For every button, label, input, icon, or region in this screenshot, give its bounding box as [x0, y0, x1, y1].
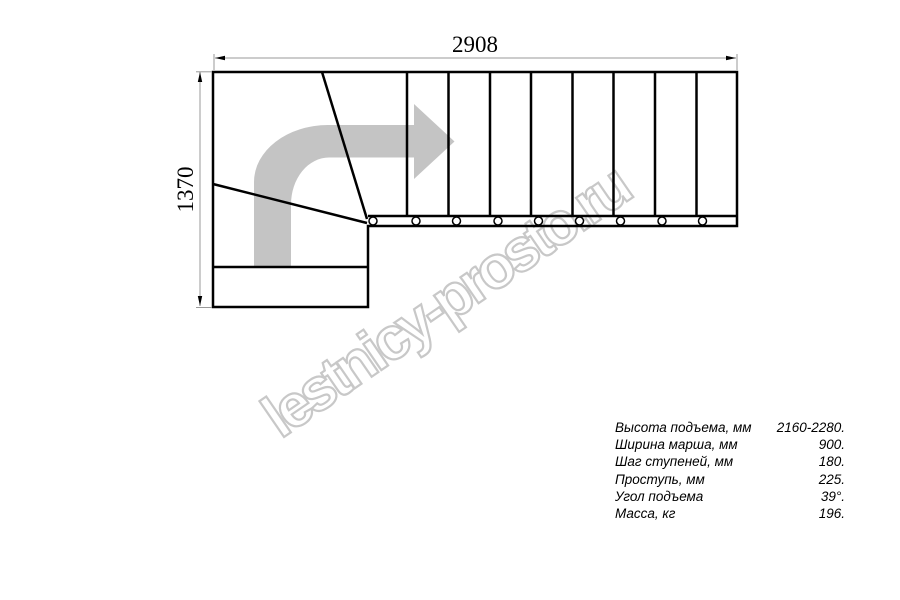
svg-text:2908: 2908: [452, 32, 498, 57]
svg-text:1370: 1370: [173, 167, 198, 213]
